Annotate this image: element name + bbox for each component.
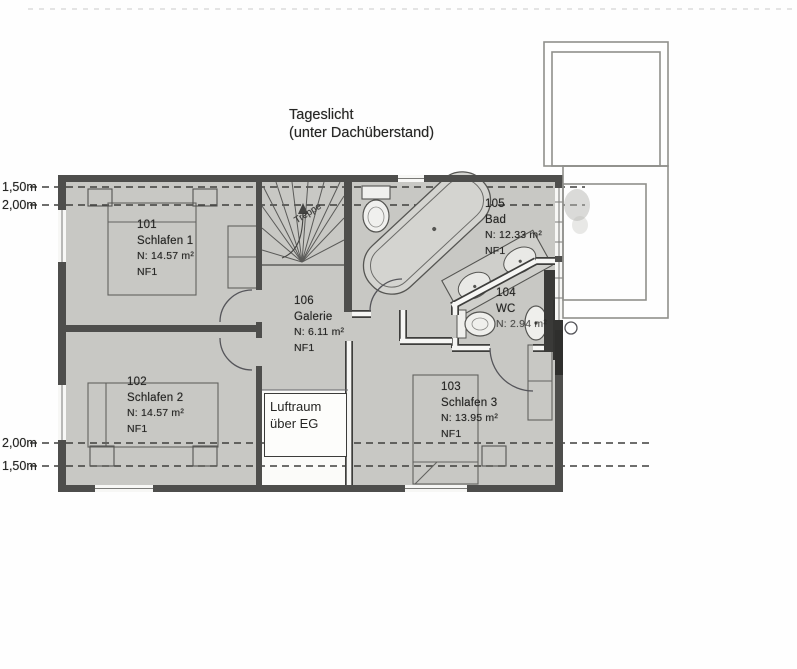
- floorplan-scan: Tageslicht (unter Dachüberstand) 1,50m 2…: [0, 0, 797, 669]
- room-name: Bad: [485, 213, 542, 229]
- room-area: N: 14.57 m²: [127, 406, 184, 422]
- room-name: Schlafen 2: [127, 391, 184, 407]
- floorplan-drawing: [0, 0, 797, 669]
- room-area: N: 12.33 m²: [485, 228, 542, 244]
- room-nf: NF1: [127, 422, 184, 438]
- room-area: N: 6.11 m²: [294, 325, 344, 341]
- void-label-box: Luftraum über EG: [264, 393, 347, 457]
- wall-dark-patch: [555, 330, 563, 375]
- room-name: Schlafen 3: [441, 396, 498, 412]
- room-label-103: 103 Schlafen 3 N: 13.95 m² NF1: [441, 380, 498, 442]
- room-number: 102: [127, 375, 184, 391]
- room-name: Schlafen 1: [137, 234, 194, 250]
- room-nf: NF1: [294, 341, 344, 357]
- room-label-106: 106 Galerie N: 6.11 m² NF1: [294, 294, 344, 356]
- room-name: Galerie: [294, 310, 344, 326]
- dim-label-150-bottom: 1,50m: [2, 459, 37, 473]
- daylight-line2: (unter Dachüberstand): [289, 124, 434, 142]
- void-line2: über EG: [270, 415, 346, 432]
- room-number: 103: [441, 380, 498, 396]
- room-number: 105: [485, 197, 542, 213]
- room-area: N: 14.57 m²: [137, 249, 194, 265]
- wall-top: [58, 175, 563, 182]
- void-line1: Luftraum: [270, 398, 346, 415]
- room-nf: NF1: [441, 427, 498, 443]
- room-number: 106: [294, 294, 344, 310]
- toilet-wc: [457, 310, 495, 338]
- room-nf: NF1: [485, 244, 542, 260]
- room-label-101: 101 Schlafen 1 N: 14.57 m² NF1: [137, 218, 194, 280]
- dim-label-200-bottom: 2,00m: [2, 436, 37, 450]
- dim-label-200-top: 2,00m: [2, 198, 37, 212]
- room-area: N: 13.95 m²: [441, 411, 498, 427]
- room-nf: NF1: [137, 265, 194, 281]
- scan-smudge: [572, 216, 588, 234]
- daylight-annotation: Tageslicht (unter Dachüberstand): [289, 106, 434, 142]
- room-area: N: 2.94 m²: [496, 317, 547, 333]
- scan-smudge: [564, 189, 590, 221]
- toilet-bad: [362, 186, 390, 232]
- room-label-104: 104 WC N: 2.94 m²: [496, 286, 547, 333]
- room-number: 101: [137, 218, 194, 234]
- terrace-outline: [544, 42, 668, 318]
- room-label-105: 105 Bad N: 12.33 m² NF1: [485, 197, 542, 259]
- dim-label-150-top: 1,50m: [2, 180, 37, 194]
- daylight-line1: Tageslicht: [289, 106, 434, 124]
- room-label-102: 102 Schlafen 2 N: 14.57 m² NF1: [127, 375, 184, 437]
- room-number: 104: [496, 286, 547, 302]
- vent-circle: [565, 322, 577, 334]
- room-name: WC: [496, 302, 547, 318]
